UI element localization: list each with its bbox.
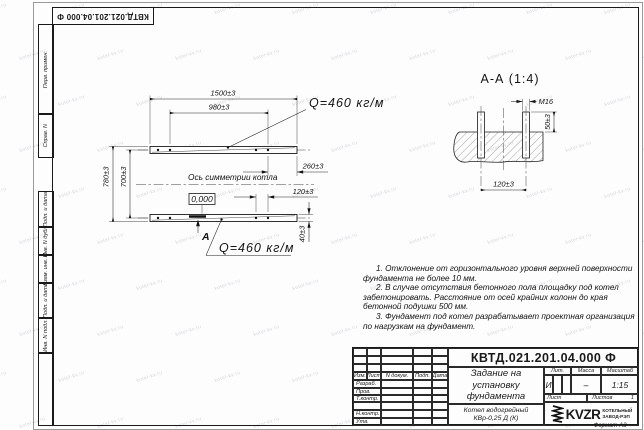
dimension-120-section: 120±3 <box>481 180 526 191</box>
tb-cell-empty <box>432 356 448 364</box>
tb-cell-empty <box>432 418 448 426</box>
tb-cell-empty <box>432 388 448 395</box>
kvzr-logo: KVZR КОТЕЛЬНЫЙ ЗАВОД-РЭП <box>551 405 633 423</box>
note-1: 1. Отклонение от горизонтального уровня … <box>363 264 639 283</box>
tb-header-ndoc: N докум. <box>381 372 413 380</box>
title-block: Изм. Лист N докум. Подп. Дата Разраб. Пр… <box>352 347 638 425</box>
tb-row-razrab: Разраб. <box>353 380 381 388</box>
tb-sheets-cell: Листов 1 <box>587 394 639 402</box>
tb-cell-empty <box>367 356 381 364</box>
note-3: 3. Фундамент под котел разрабатывает про… <box>363 312 639 331</box>
tb-cell-empty <box>413 364 432 372</box>
tb-header-podp: Подп. <box>413 372 432 380</box>
tb-cell-empty <box>413 348 432 356</box>
logo-text: KVZR <box>566 407 601 422</box>
tb-cell-empty <box>353 348 367 356</box>
tb-scale-value: 1:15 <box>601 375 639 394</box>
tb-cell-empty <box>367 348 381 356</box>
svg-text:120±3: 120±3 <box>293 187 315 196</box>
svg-text:980±3: 980±3 <box>209 103 231 112</box>
svg-text:260±3: 260±3 <box>302 162 325 171</box>
tb-cell-empty <box>553 375 562 394</box>
tb-header-data: Дата <box>432 372 448 380</box>
tb-cell-empty <box>432 402 448 410</box>
dimension-40: 40±3 <box>298 202 314 242</box>
tb-cell-empty <box>381 418 413 426</box>
tb-cell-empty <box>432 395 448 402</box>
svg-text:780±3: 780±3 <box>102 166 111 188</box>
tb-header-list: Лист <box>367 372 381 380</box>
svg-text:Q=460 кг/м: Q=460 кг/м <box>219 241 294 255</box>
tb-header-izm: Изм. <box>353 372 367 380</box>
plan-view: Ось симметрии котла 1500±3 <box>102 89 385 256</box>
dimension-1500: 1500±3 <box>150 89 297 145</box>
svg-text:М16: М16 <box>539 97 554 106</box>
tb-cell-empty <box>381 348 413 356</box>
tb-cell-empty <box>353 356 367 364</box>
tb-cell-empty <box>381 388 413 395</box>
tb-cell-empty <box>432 364 448 372</box>
tb-cell-empty <box>381 356 413 364</box>
svg-text:А: А <box>201 231 210 243</box>
tb-sheets-label: Листов <box>592 395 612 401</box>
tb-mass-header: Масса <box>571 367 601 375</box>
format-label: Формат А3 <box>560 423 644 429</box>
section-title: А-А (1:4) <box>480 72 539 86</box>
tb-cell-empty <box>413 410 432 418</box>
logo-subtitle: КОТЕЛЬНЫЙ ЗАВОД-РЭП <box>602 408 632 419</box>
tb-row-prov: Пров. <box>353 388 381 395</box>
tb-cell-empty <box>413 388 432 395</box>
svg-text:0,000: 0,000 <box>191 194 213 204</box>
load-callout-bottom: Q=460 кг/м <box>206 218 294 255</box>
svg-text:Q=460 кг/м: Q=460 кг/м <box>309 96 384 110</box>
dimension-980: 980±3 <box>170 103 268 145</box>
symmetry-axis-label: Ось симметрии котла <box>188 172 278 182</box>
svg-text:120±3: 120±3 <box>493 180 515 189</box>
tb-cell-empty <box>562 375 571 394</box>
dimension-120-plan: 120±3 <box>234 187 318 212</box>
top-foundation-beam <box>150 147 297 154</box>
tb-cell-empty <box>381 380 413 388</box>
dimension-50: 50±3 <box>531 112 557 132</box>
load-callout-top: Q=460 кг/м <box>227 96 385 149</box>
level-mark: 0,000 <box>189 194 215 214</box>
section-view-a-a: А-А (1:4) М16 50±3 <box>454 72 557 192</box>
tb-scale-header: Масштаб <box>601 367 639 375</box>
svg-text:1500±3: 1500±3 <box>211 89 237 98</box>
svg-text:40±3: 40±3 <box>298 225 307 242</box>
tb-cell-empty <box>432 410 448 418</box>
dimension-m16: М16 <box>511 97 554 111</box>
tb-sheet-label: Лист <box>544 394 587 402</box>
tb-row-tkontr: Т.контр. <box>353 395 381 402</box>
tb-cell-empty <box>432 380 448 388</box>
dimension-700: 700±3 <box>119 150 148 218</box>
tb-lit-value: И <box>544 375 553 394</box>
tb-document-name: Задание на установку фундамента <box>448 367 544 404</box>
tb-cell-empty <box>413 395 432 402</box>
tb-cell-empty <box>367 364 381 372</box>
drawing-sheet: kotel-kv.rukotel-kv.rukotel-kv.rukotel-k… <box>0 0 644 430</box>
svg-text:700±3: 700±3 <box>119 166 128 188</box>
corner-designation-text: КВТД.021.201.04.000 Ф <box>57 12 149 21</box>
tb-row-utv: Утв. <box>353 418 381 426</box>
spring-icon <box>551 405 564 423</box>
tb-designation: КВТД.021.201.04.000 Ф <box>448 348 639 367</box>
tb-cell-empty <box>413 380 432 388</box>
note-2: 2. В случае отсутствия бетонного пола пл… <box>363 283 639 312</box>
tb-cell-empty <box>413 402 432 410</box>
tb-cell-empty <box>381 364 413 372</box>
tb-cell-empty <box>381 395 413 402</box>
tb-sheets-value: 1 <box>631 395 634 401</box>
tb-cell-empty <box>432 348 448 356</box>
tb-row-nkontr: Н.контр. <box>353 410 381 418</box>
tb-cell-empty <box>381 410 413 418</box>
bottom-foundation-beam <box>150 215 297 222</box>
tb-cell-empty <box>381 402 413 410</box>
tb-cell-empty <box>353 402 381 410</box>
corner-designation-stamp: КВТД.021.201.04.000 Ф <box>52 7 154 25</box>
svg-text:50±3: 50±3 <box>545 114 552 130</box>
tb-product-name: Котел водогрейный КВр-0,25 Д (К) <box>448 404 544 426</box>
tb-lit-header: Лит. <box>544 367 571 375</box>
technical-notes: 1. Отклонение от горизонтального уровня … <box>363 264 639 331</box>
tb-cell-empty <box>413 418 432 426</box>
tb-cell-empty <box>413 356 432 364</box>
tb-cell-empty <box>353 364 367 372</box>
tb-mass-value: – <box>571 375 601 394</box>
